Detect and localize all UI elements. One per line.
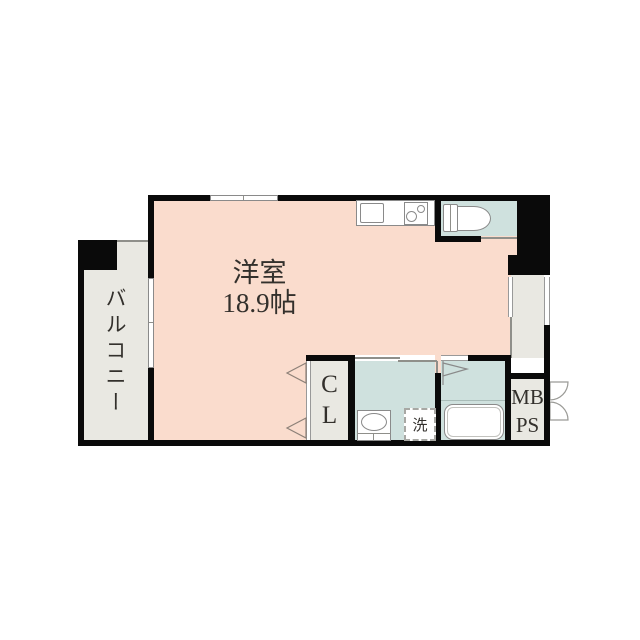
wash-bath-divider-thin (436, 361, 438, 373)
bathtub-icon (444, 404, 504, 440)
closet-label-line1: C (311, 369, 348, 400)
stove-burner-small-icon (417, 205, 425, 213)
meter-pipe-space-label: MB PS (509, 383, 546, 439)
mbps-label-line1: MB (509, 383, 546, 411)
bathroom-door-icon (442, 361, 470, 387)
vanity-basin-icon (361, 413, 387, 431)
meter-box-door-swing-icon (550, 381, 574, 421)
wall-closet-right (348, 355, 355, 446)
balcony-label: バルコニー (100, 287, 130, 432)
closet-door-arrow-icon (284, 416, 308, 440)
wall-mbps-top (505, 373, 550, 379)
window-left-mullion (149, 322, 153, 323)
stove-burner-large-icon (406, 211, 417, 222)
main-room-label: 洋室 18.9帖 (192, 258, 327, 318)
closet-door-arrow-icon (284, 361, 308, 385)
entry-gap (511, 358, 544, 373)
washroom-sliding-door-panel-1 (355, 357, 400, 359)
bath-deck-line (441, 400, 505, 401)
closet-label: C L (311, 369, 348, 431)
main-room-name: 洋室 (192, 258, 327, 288)
entry-door-opening (544, 277, 550, 325)
vanity-cabinet-divider (373, 434, 374, 441)
bathtub-inner-rim (447, 407, 501, 437)
main-room-size: 18.9帖 (192, 288, 327, 318)
kitchen-sink-icon (360, 203, 384, 223)
wall-toilet-left (435, 195, 441, 242)
wall-balcony-left (78, 240, 84, 446)
washing-machine-area: 洗 (404, 408, 436, 441)
mbps-label-line2: PS (509, 411, 546, 439)
balcony-top-line (117, 240, 148, 242)
toilet-bowl-icon (457, 206, 491, 231)
strip-left-line (510, 317, 512, 358)
wall-bath-top (468, 355, 511, 361)
window-top (210, 195, 278, 201)
vanity-cabinet-line (357, 433, 391, 434)
corner-block-b (508, 255, 550, 275)
closet-label-line2: L (311, 400, 348, 431)
floor-plan: 洗 洋室 18.9帖 バルコニー C L MB PS (0, 0, 640, 640)
balcony-corner-block (78, 240, 117, 270)
toilet-tank-line (450, 205, 451, 231)
strip-door-opening (508, 277, 513, 317)
window-top-mullion (243, 196, 244, 200)
window-left (148, 278, 154, 368)
wall-top (148, 195, 550, 201)
wall-bottom (78, 440, 550, 446)
entry-strip (511, 275, 544, 358)
washing-machine-label: 洗 (412, 414, 427, 435)
wall-toilet-bottom (435, 236, 481, 242)
toilet-door-line (481, 237, 517, 239)
washroom-sliding-door-panel-2 (398, 360, 437, 362)
